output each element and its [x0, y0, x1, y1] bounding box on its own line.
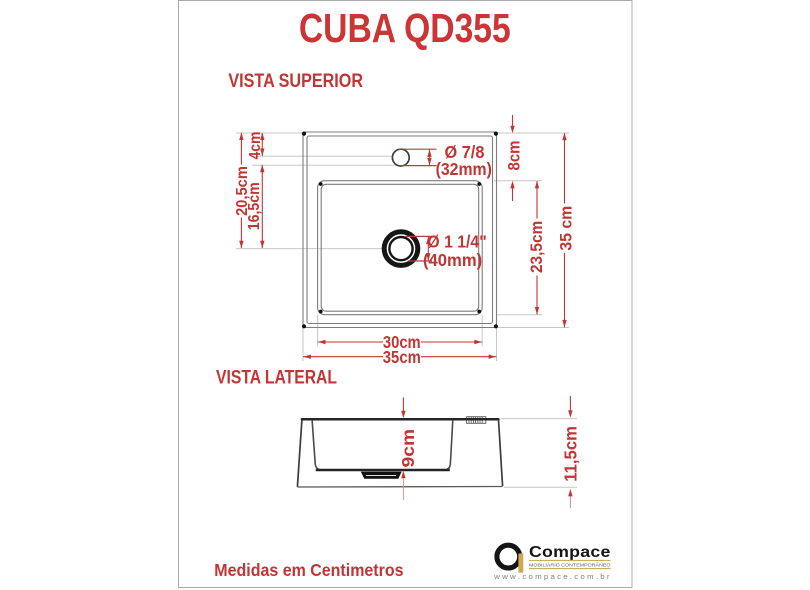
svg-text:w w w . c o m p a c e . c o m: w w w . c o m p a c e . c o m . b r	[493, 572, 610, 581]
svg-text:16,5cm: 16,5cm	[246, 182, 263, 230]
svg-text:23,5cm: 23,5cm	[528, 221, 546, 273]
svg-text:VISTA SUPERIOR: VISTA SUPERIOR	[228, 71, 363, 92]
svg-text:(32mm): (32mm)	[436, 159, 492, 179]
svg-text:11,5cm: 11,5cm	[561, 426, 581, 482]
svg-text:MOBILIÁRIO CONTEMPORÂNEO: MOBILIÁRIO CONTEMPORÂNEO	[529, 561, 611, 567]
svg-text:35 cm: 35 cm	[557, 206, 575, 251]
svg-text:9cm: 9cm	[398, 429, 418, 468]
svg-text:4cm: 4cm	[247, 132, 264, 160]
svg-text:Compace: Compace	[529, 544, 611, 561]
svg-text:8cm: 8cm	[505, 141, 523, 171]
svg-text:Medidas em Centimetros: Medidas em Centimetros	[214, 560, 403, 580]
svg-text:CUBA QD355: CUBA QD355	[299, 5, 511, 51]
svg-text:Ø 1 1/4": Ø 1 1/4"	[427, 231, 486, 251]
svg-text:35cm: 35cm	[383, 347, 421, 367]
svg-text:VISTA LATERAL: VISTA LATERAL	[216, 367, 337, 388]
svg-text:(40mm): (40mm)	[423, 250, 482, 270]
